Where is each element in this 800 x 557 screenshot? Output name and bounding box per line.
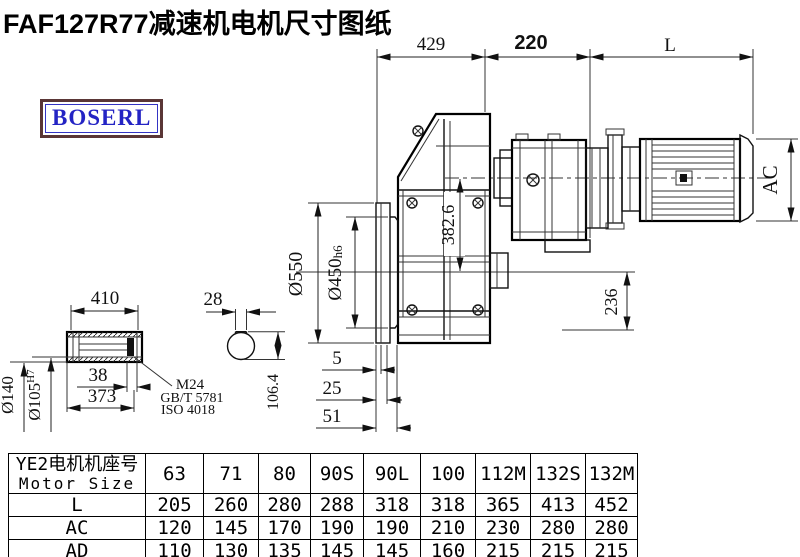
bolt-icon xyxy=(413,126,423,136)
table-row: AC 120 145 170 190 190 210 230 280 280 xyxy=(9,517,638,540)
table-cell: 205 xyxy=(146,494,204,517)
column-header: 132S xyxy=(531,454,586,494)
table-cell: 190 xyxy=(311,517,364,540)
dim-220-label: 220 xyxy=(514,32,547,54)
column-header: 90L xyxy=(364,454,421,494)
table-cell: 280 xyxy=(586,517,638,540)
table-cell: 130 xyxy=(204,540,259,557)
table-row: L 205 260 280 288 318 318 365 413 452 xyxy=(9,494,638,517)
table-cell: 280 xyxy=(259,494,311,517)
table-cell: 145 xyxy=(364,540,421,557)
offset-dimensions: 5 25 51 xyxy=(316,345,411,432)
bolt-icon xyxy=(407,305,417,315)
table-cell: 160 xyxy=(421,540,476,557)
table-cell: 110 xyxy=(146,540,204,557)
table-cell: 318 xyxy=(421,494,476,517)
table-cell: 280 xyxy=(531,517,586,540)
table-cell: 215 xyxy=(586,540,638,557)
motor xyxy=(606,129,753,229)
dim-373-label: 373 xyxy=(88,386,117,407)
bolt-spec-iso: ISO 4018 xyxy=(161,403,215,418)
output-shaft-cover xyxy=(490,253,508,288)
motor-size-table: YE2电机机座号 Motor Size 63 71 80 90S 90L 100… xyxy=(8,453,638,557)
table-cell: 230 xyxy=(476,517,531,540)
hollow-shaft-detail: 410 Ø140 Ø105H7 38 xyxy=(0,288,224,432)
table-cell: 190 xyxy=(364,517,421,540)
column-header: 63 xyxy=(146,454,204,494)
dim-382-label: 382.6 xyxy=(438,205,458,246)
table-row: AD 110 130 135 145 145 160 215 215 215 xyxy=(9,540,638,557)
table-cell: 135 xyxy=(259,540,311,557)
dim-L-label: L xyxy=(664,35,676,56)
drawing-page: FAF127R77减速机电机尺寸图纸 BOSERL xyxy=(0,0,800,557)
top-dimensions: 429 220 L xyxy=(377,32,753,238)
column-header: 100 xyxy=(421,454,476,494)
motor-size-label-en: Motor Size xyxy=(9,475,145,493)
dim-25-label: 25 xyxy=(323,378,342,399)
dim-429-label: 429 xyxy=(417,34,446,55)
motor-fins xyxy=(652,145,734,215)
center-distance-dimension: 382.6 xyxy=(438,179,465,271)
motor-size-label-cn: YE2电机机座号 xyxy=(9,455,145,475)
bolt-icon xyxy=(473,198,483,208)
axis-height-dimension: 236 xyxy=(562,272,634,330)
bolt-icon xyxy=(407,198,417,208)
table-cell: 413 xyxy=(531,494,586,517)
dim-410-label: 410 xyxy=(91,288,120,309)
input-gear-unit xyxy=(494,134,608,252)
technical-drawing: 429 220 L xyxy=(0,0,800,452)
table-cell: 170 xyxy=(259,517,311,540)
table-cell: 215 xyxy=(476,540,531,557)
dim-106-label: 106.4 xyxy=(265,374,282,410)
column-header: 80 xyxy=(259,454,311,494)
dim-AC-label: AC xyxy=(758,165,782,194)
table-cell: 145 xyxy=(204,517,259,540)
ac-dimension: AC xyxy=(756,139,798,221)
column-header: 112M xyxy=(476,454,531,494)
bolt-icon xyxy=(473,305,483,315)
column-header: 132M xyxy=(586,454,638,494)
table-header-cell: YE2电机机座号 Motor Size xyxy=(9,454,146,494)
retaining-plug xyxy=(127,338,134,356)
dim-38-label: 38 xyxy=(89,365,108,386)
table-cell: 318 xyxy=(364,494,421,517)
row-label: AD xyxy=(9,540,146,557)
table-cell: 452 xyxy=(586,494,638,517)
dim-550-label: Ø550 xyxy=(285,252,307,296)
row-label: AC xyxy=(9,517,146,540)
table-cell: 145 xyxy=(311,540,364,557)
dim-450h6-label: Ø450h6 xyxy=(325,245,346,301)
table-cell: 288 xyxy=(311,494,364,517)
table-cell: 210 xyxy=(421,517,476,540)
column-header: 90S xyxy=(311,454,364,494)
flange-dimensions: Ø550 Ø450h6 xyxy=(285,203,388,343)
bolt-icon xyxy=(527,174,539,186)
dim-28-label: 28 xyxy=(204,289,223,310)
output-flange xyxy=(376,203,398,343)
dim-140-label: Ø140 xyxy=(0,376,17,414)
table-header-row: YE2电机机座号 Motor Size 63 71 80 90S 90L 100… xyxy=(9,454,638,494)
dim-5-label: 5 xyxy=(332,348,342,369)
column-header: 71 xyxy=(204,454,259,494)
dim-236-label: 236 xyxy=(601,289,621,316)
dim-105H7-label: Ø105H7 xyxy=(25,369,44,421)
row-label: L xyxy=(9,494,146,517)
dim-51-label: 51 xyxy=(323,406,342,427)
table-cell: 365 xyxy=(476,494,531,517)
table-cell: 215 xyxy=(531,540,586,557)
table-cell: 120 xyxy=(146,517,204,540)
table-cell: 260 xyxy=(204,494,259,517)
